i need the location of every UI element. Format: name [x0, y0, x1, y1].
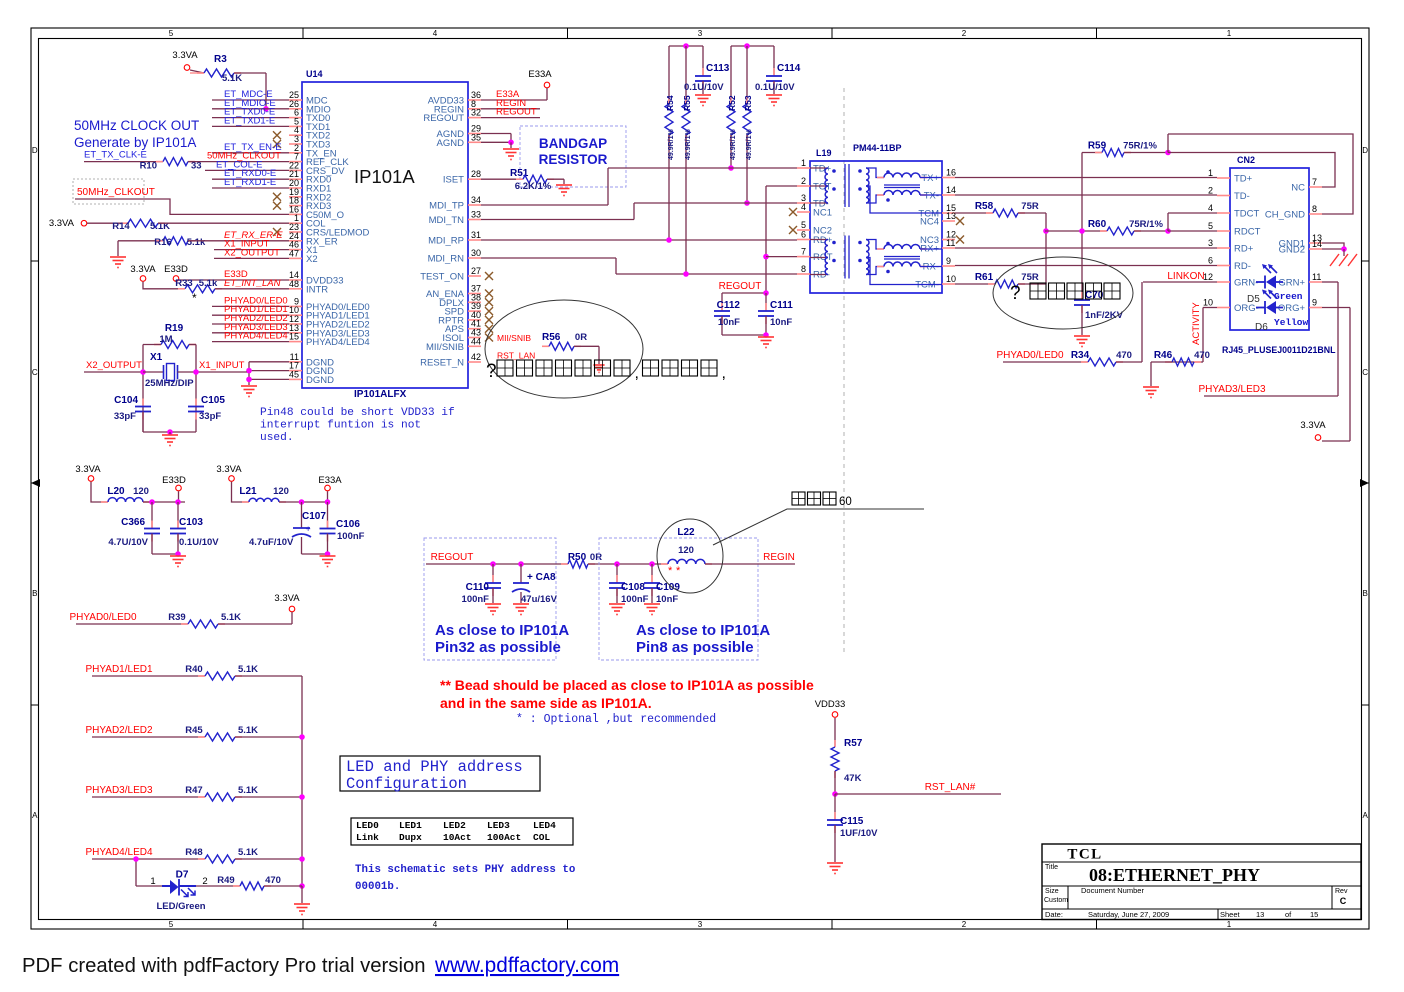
svg-text:RDCT: RDCT: [1234, 227, 1261, 238]
svg-text:4: 4: [433, 29, 438, 38]
svg-text:** Bead should be placed as cl: ** Bead should be placed as close to IP1…: [440, 677, 814, 693]
svg-text:R49: R49: [217, 875, 234, 886]
svg-text:Title: Title: [1045, 864, 1058, 871]
svg-text:TX-: TX-: [924, 191, 939, 202]
svg-text:used.: used.: [260, 432, 294, 444]
svg-text:3.3VA: 3.3VA: [75, 464, 101, 475]
svg-text:9: 9: [946, 256, 951, 266]
svg-text:08:ETHERNET_PHY: 08:ETHERNET_PHY: [1089, 865, 1260, 885]
svg-text:Pin32 as possible: Pin32 as possible: [435, 639, 561, 656]
svg-text:120: 120: [273, 486, 289, 497]
svg-text:100Act: 100Act: [487, 832, 521, 843]
svg-text:VDD33: VDD33: [815, 699, 846, 710]
svg-text:LED4: LED4: [533, 820, 556, 831]
svg-text:TD-: TD-: [1234, 191, 1250, 202]
svg-text:13: 13: [946, 211, 956, 221]
svg-text:ORG+: ORG+: [1278, 303, 1306, 314]
svg-text:C114: C114: [777, 63, 801, 74]
svg-text:REGOUT: REGOUT: [496, 107, 537, 118]
svg-text:R16: R16: [154, 237, 171, 248]
svg-text:C112: C112: [717, 300, 741, 311]
svg-text:GRN-: GRN-: [1234, 278, 1258, 289]
svg-text:R56: R56: [542, 332, 561, 343]
svg-text:E33A: E33A: [318, 475, 342, 486]
svg-text:?: ?: [486, 361, 497, 382]
svg-text:www.pdffactory.com: www.pdffactory.com: [434, 954, 619, 977]
svg-text:*: *: [192, 291, 197, 305]
svg-text:R47: R47: [185, 785, 202, 796]
svg-text:A: A: [32, 811, 38, 820]
svg-text:10nF: 10nF: [656, 594, 678, 605]
svg-text:RESET_N: RESET_N: [420, 358, 464, 369]
svg-text:* : Optional ,but recommended: * : Optional ,but recommended: [516, 713, 716, 726]
svg-text:,: ,: [722, 365, 726, 382]
svg-text:32: 32: [471, 108, 481, 118]
svg-text:PHYAD4/LED4: PHYAD4/LED4: [85, 847, 153, 858]
svg-text:Pin8 as possible: Pin8 as possible: [636, 639, 754, 656]
svg-text:8: 8: [801, 264, 806, 274]
svg-text:U14: U14: [306, 69, 323, 79]
svg-text:5.1K: 5.1K: [238, 725, 258, 736]
svg-text:and in the same side as IP101A: and in the same side as IP101A.: [440, 695, 652, 711]
svg-text:Saturday, June 27, 2009: Saturday, June 27, 2009: [1088, 910, 1169, 919]
svg-text:L21: L21: [239, 486, 257, 497]
svg-text:2: 2: [1208, 186, 1213, 196]
svg-text:3: 3: [1208, 238, 1213, 248]
svg-text:COL: COL: [533, 832, 550, 843]
svg-text:120: 120: [678, 545, 694, 556]
svg-text:E33A: E33A: [528, 69, 552, 80]
svg-text:TDCT: TDCT: [1234, 209, 1260, 220]
svg-text:LED3: LED3: [487, 820, 510, 831]
svg-text:GRN+: GRN+: [1278, 278, 1305, 289]
svg-text:47u/16V: 47u/16V: [521, 594, 558, 605]
svg-text:10Act: 10Act: [443, 832, 472, 843]
svg-text:5.1K: 5.1K: [238, 785, 258, 796]
svg-text:ET_TX_CLK-E: ET_TX_CLK-E: [84, 150, 147, 161]
svg-text:C103: C103: [179, 517, 203, 528]
svg-text:75R/1%: 75R/1%: [1123, 141, 1157, 152]
svg-text:470: 470: [1194, 350, 1210, 361]
svg-text:As close to IP101A: As close to IP101A: [435, 622, 569, 639]
svg-text:MDI_RN: MDI_RN: [428, 254, 465, 265]
svg-text:PHYAD0/LED0: PHYAD0/LED0: [996, 350, 1064, 361]
svg-text:470: 470: [1116, 350, 1132, 361]
svg-text:R55: R55: [682, 95, 692, 111]
svg-text:Date:: Date:: [1045, 910, 1063, 919]
svg-text:LED0: LED0: [356, 820, 379, 831]
svg-text:D: D: [32, 146, 38, 155]
svg-text:RD+: RD+: [1234, 244, 1254, 255]
svg-text:3.3VA: 3.3VA: [172, 50, 198, 61]
svg-text:R34: R34: [1071, 350, 1090, 361]
svg-text:4.7uF/10V: 4.7uF/10V: [249, 537, 294, 548]
svg-text:1: 1: [150, 876, 155, 887]
svg-text:C366: C366: [121, 517, 145, 528]
svg-text:ET_INT_LAN: ET_INT_LAN: [224, 278, 281, 289]
svg-text:3.3VA: 3.3VA: [49, 218, 75, 229]
svg-text:+ CA8: + CA8: [527, 572, 556, 583]
svg-text:5: 5: [1208, 221, 1213, 231]
svg-text:MII/SNIB: MII/SNIB: [426, 342, 464, 353]
svg-text:5: 5: [169, 920, 174, 929]
svg-text:28: 28: [471, 169, 481, 179]
svg-text:TEST_ON: TEST_ON: [420, 272, 464, 283]
svg-text:14: 14: [1312, 239, 1322, 249]
svg-text:50MHz_CLKOUT: 50MHz_CLKOUT: [77, 187, 155, 198]
svg-text:5.1K: 5.1K: [221, 612, 241, 623]
svg-text:30: 30: [471, 248, 481, 258]
svg-text:X1: X1: [150, 352, 163, 363]
svg-text:33pF: 33pF: [199, 411, 221, 422]
svg-text:0R: 0R: [575, 332, 587, 343]
svg-text:RD-: RD-: [1234, 261, 1251, 272]
svg-text:0.1U/10V: 0.1U/10V: [684, 82, 724, 93]
svg-text:R40: R40: [185, 664, 202, 675]
svg-text:49.9R/1%: 49.9R/1%: [685, 128, 692, 160]
svg-text:Size: Size: [1045, 888, 1059, 895]
svg-text:R52: R52: [727, 95, 737, 111]
svg-text:Document Number: Document Number: [1081, 886, 1144, 895]
svg-text:AGND: AGND: [437, 138, 465, 149]
svg-text:Link: Link: [356, 832, 379, 843]
svg-text:6.2K/1%: 6.2K/1%: [515, 181, 552, 192]
svg-text:5: 5: [169, 29, 174, 38]
svg-text:PHYAD3/LED3: PHYAD3/LED3: [85, 785, 153, 796]
svg-text:4: 4: [801, 202, 806, 212]
svg-text:REGOUT: REGOUT: [431, 552, 474, 563]
svg-text:R48: R48: [185, 847, 202, 858]
svg-text:LED and PHY address: LED and PHY address: [346, 758, 523, 776]
svg-text:X2_OUTPUT: X2_OUTPUT: [86, 360, 142, 371]
svg-text:2: 2: [962, 920, 967, 929]
svg-text:5.1k: 5.1k: [199, 278, 218, 289]
svg-text:6: 6: [801, 230, 806, 240]
svg-text:X2_OUTPUT: X2_OUTPUT: [224, 247, 280, 258]
svg-text:R39: R39: [168, 612, 185, 623]
svg-text:*: *: [676, 565, 681, 577]
svg-text:0.1U/10V: 0.1U/10V: [179, 537, 219, 548]
svg-text:3: 3: [698, 29, 703, 38]
svg-text:C113: C113: [706, 63, 730, 74]
svg-text:C106: C106: [336, 519, 360, 530]
svg-text:PHYAD2/LED2: PHYAD2/LED2: [85, 725, 153, 736]
svg-text:31: 31: [471, 230, 481, 240]
svg-text:1: 1: [1227, 920, 1232, 929]
svg-text:14: 14: [946, 185, 956, 195]
svg-text:This schematic sets PHY addres: This schematic sets PHY address to: [355, 864, 575, 876]
svg-text:D7: D7: [176, 870, 189, 881]
svg-text:100nF: 100nF: [462, 594, 490, 605]
svg-text:R57: R57: [844, 738, 863, 749]
svg-text:1UF/10V: 1UF/10V: [840, 828, 878, 839]
svg-text:L20: L20: [107, 486, 125, 497]
svg-text:44: 44: [471, 336, 481, 346]
svg-text:49.9R/1%: 49.9R/1%: [668, 128, 675, 160]
svg-text:TD+: TD+: [1234, 174, 1253, 185]
svg-text:11: 11: [946, 238, 955, 248]
svg-text:D5: D5: [1247, 294, 1260, 305]
svg-text:E33D: E33D: [164, 264, 188, 275]
svg-text:D: D: [1362, 146, 1368, 155]
svg-text:Custom: Custom: [1044, 897, 1068, 904]
svg-text:100nF: 100nF: [337, 531, 365, 542]
svg-text:C111: C111: [770, 300, 793, 311]
svg-text:NC4: NC4: [920, 217, 939, 228]
svg-text:TD+: TD+: [813, 164, 832, 175]
svg-text:CN2: CN2: [1237, 155, 1255, 165]
svg-text:49.9R/1%: 49.9R/1%: [746, 128, 753, 160]
svg-text:MII/SNIB: MII/SNIB: [497, 333, 531, 343]
svg-text:34: 34: [471, 195, 481, 205]
svg-text:0R: 0R: [590, 552, 602, 563]
svg-text:interrupt funtion is not: interrupt funtion is not: [260, 420, 421, 432]
svg-text:3.3VA: 3.3VA: [130, 264, 156, 275]
svg-text:R3: R3: [214, 54, 227, 65]
svg-text:48: 48: [289, 279, 299, 289]
svg-text:R53: R53: [743, 95, 753, 111]
svg-text:*: *: [668, 565, 673, 577]
svg-text:ET_TXD1-E: ET_TXD1-E: [224, 115, 275, 126]
svg-text:9: 9: [1312, 298, 1317, 308]
svg-text:GND2: GND2: [1279, 245, 1305, 256]
svg-text:60: 60: [839, 496, 852, 508]
svg-text:1M: 1M: [159, 334, 172, 345]
svg-text:49.9R/1%: 49.9R/1%: [730, 128, 737, 160]
svg-text:75R/1%: 75R/1%: [1129, 219, 1163, 230]
svg-text:5.1K: 5.1K: [238, 847, 258, 858]
svg-text:DGND: DGND: [306, 375, 334, 386]
svg-text:MDI_RP: MDI_RP: [428, 236, 464, 247]
svg-text:C115: C115: [840, 816, 864, 827]
svg-text:BANDGAP: BANDGAP: [539, 136, 607, 151]
svg-text:0.1U/10V: 0.1U/10V: [755, 82, 795, 93]
svg-text:16: 16: [946, 168, 956, 178]
svg-text:5.1K: 5.1K: [222, 73, 242, 84]
svg-text:C110: C110: [466, 582, 490, 593]
svg-text:REGOUT: REGOUT: [719, 281, 762, 292]
svg-text:10: 10: [1203, 298, 1213, 308]
svg-text:PHYAD1/LED1: PHYAD1/LED1: [85, 664, 153, 675]
svg-text:42: 42: [471, 352, 481, 362]
svg-text:10nF: 10nF: [718, 317, 740, 328]
svg-text:7: 7: [801, 247, 806, 257]
svg-text:4: 4: [433, 920, 438, 929]
svg-text:of: of: [1285, 910, 1292, 919]
svg-text:E33D: E33D: [162, 475, 186, 486]
svg-text:R46: R46: [1154, 350, 1173, 361]
svg-text:00001b.: 00001b.: [355, 881, 400, 893]
svg-text:7: 7: [1312, 177, 1317, 187]
svg-text:8: 8: [1312, 204, 1317, 214]
svg-text:LINKON: LINKON: [1167, 271, 1204, 282]
svg-text:R19: R19: [165, 323, 184, 334]
svg-text:?: ?: [1010, 283, 1021, 304]
svg-text:C105: C105: [201, 395, 225, 406]
svg-text:ISET: ISET: [443, 175, 464, 186]
svg-text:D6: D6: [1255, 322, 1268, 333]
svg-text:6: 6: [1208, 256, 1213, 266]
svg-text:C107: C107: [302, 511, 326, 522]
svg-text:75R: 75R: [1021, 201, 1039, 212]
svg-text:50MHz CLOCK OUT: 50MHz CLOCK OUT: [74, 118, 199, 133]
svg-text:15: 15: [289, 332, 299, 342]
svg-text:IP101ALFX: IP101ALFX: [354, 389, 407, 400]
svg-text:Sheet: Sheet: [1220, 910, 1241, 919]
svg-text:4.7U/10V: 4.7U/10V: [108, 537, 148, 548]
svg-text:PDF created with pdfFactory Pr: PDF created with pdfFactory Pro trial ve…: [22, 955, 426, 977]
svg-text:L19: L19: [816, 148, 832, 158]
svg-text:35: 35: [471, 132, 481, 142]
svg-text:3.3VA: 3.3VA: [274, 593, 300, 604]
svg-text:REGOUT: REGOUT: [423, 113, 464, 124]
svg-text:TCL: TCL: [1067, 847, 1102, 863]
svg-text:1: 1: [1208, 168, 1213, 178]
svg-text:45: 45: [289, 369, 299, 379]
svg-text:R14: R14: [112, 221, 130, 232]
svg-text:R33: R33: [175, 278, 192, 289]
svg-text:4: 4: [1208, 203, 1213, 213]
svg-text:Green: Green: [1274, 291, 1303, 302]
svg-text:25MHz/DIP: 25MHz/DIP: [145, 378, 194, 389]
svg-text:R61: R61: [975, 272, 994, 283]
svg-text:RST_LAN: RST_LAN: [497, 351, 535, 361]
svg-text:L22: L22: [677, 527, 695, 538]
svg-text:RST_LAN#: RST_LAN#: [925, 782, 976, 793]
svg-text:NC: NC: [1291, 183, 1305, 194]
svg-text:75R: 75R: [1021, 272, 1039, 283]
svg-text:10: 10: [946, 274, 956, 284]
svg-text:CH_GND: CH_GND: [1265, 210, 1305, 221]
svg-text:33: 33: [471, 210, 481, 220]
svg-text:TCT: TCT: [813, 182, 832, 193]
svg-text:PHYAD4/LED4: PHYAD4/LED4: [224, 331, 288, 342]
svg-text:3: 3: [698, 920, 703, 929]
svg-text:47: 47: [289, 248, 299, 258]
svg-text:13: 13: [1256, 910, 1264, 919]
svg-text:B: B: [1363, 589, 1368, 598]
svg-text:RJ45_PLUSEJ0011D21BNL: RJ45_PLUSEJ0011D21BNL: [1222, 345, 1336, 355]
svg-text:2: 2: [801, 176, 806, 186]
svg-text:47K: 47K: [844, 773, 862, 784]
svg-text:+: +: [306, 524, 311, 534]
svg-text:R10: R10: [140, 161, 157, 172]
svg-text:1: 1: [1227, 29, 1232, 38]
svg-text:3.3VA: 3.3VA: [216, 464, 242, 475]
svg-text:11: 11: [1312, 272, 1321, 282]
svg-text:C: C: [1340, 896, 1347, 906]
svg-text:1: 1: [801, 158, 806, 168]
svg-text:R54: R54: [665, 95, 675, 111]
svg-text:LED/Green: LED/Green: [156, 901, 205, 912]
svg-text:R58: R58: [975, 201, 994, 212]
svg-text:33pF: 33pF: [114, 411, 136, 422]
svg-text:X2: X2: [306, 254, 318, 265]
svg-text:C104: C104: [114, 395, 138, 406]
svg-text:5.1K: 5.1K: [238, 664, 258, 675]
svg-text:10nF: 10nF: [770, 317, 792, 328]
svg-text:3.3VA: 3.3VA: [1300, 420, 1326, 431]
svg-text:A: A: [1363, 811, 1369, 820]
svg-text:R45: R45: [185, 725, 203, 736]
svg-text:MDI_TN: MDI_TN: [429, 215, 465, 226]
svg-text:X1_INPUT: X1_INPUT: [199, 360, 245, 371]
svg-text:Dupx: Dupx: [399, 832, 422, 843]
svg-text:INTR: INTR: [306, 284, 328, 295]
svg-text:IP101A: IP101A: [354, 166, 415, 187]
svg-text:PM44-11BP: PM44-11BP: [853, 143, 902, 153]
svg-text:Yellow: Yellow: [1274, 317, 1309, 328]
svg-text:27: 27: [471, 266, 481, 276]
svg-text:REGIN: REGIN: [763, 552, 795, 563]
svg-text:RD+: RD+: [813, 235, 833, 246]
svg-text:Pin48 could be short VDD33 if: Pin48 could be short VDD33 if: [260, 407, 455, 419]
svg-text:5.1k: 5.1k: [187, 237, 206, 248]
svg-text:C: C: [1362, 368, 1368, 377]
svg-text:15: 15: [1310, 910, 1318, 919]
svg-text:LED2: LED2: [443, 820, 466, 831]
svg-text:TX+: TX+: [921, 173, 939, 184]
svg-text:120: 120: [133, 486, 149, 497]
svg-text:ACTIVITY: ACTIVITY: [1191, 302, 1202, 345]
svg-text:470: 470: [265, 875, 281, 886]
svg-text:B: B: [32, 589, 37, 598]
svg-text:Rev: Rev: [1335, 888, 1348, 895]
svg-text:PHYAD3/LED3: PHYAD3/LED3: [1198, 384, 1266, 395]
svg-text:RESISTOR: RESISTOR: [539, 152, 608, 167]
svg-text:Generate by IP101A: Generate by IP101A: [74, 135, 196, 150]
svg-text:Configuration: Configuration: [346, 775, 467, 793]
svg-text:,: ,: [635, 365, 639, 382]
svg-text:MDI_TP: MDI_TP: [429, 201, 464, 212]
svg-text:C: C: [32, 368, 38, 377]
svg-text:2: 2: [962, 29, 967, 38]
svg-text:5: 5: [801, 220, 806, 230]
svg-text:C108: C108: [621, 582, 645, 593]
svg-text:LED1: LED1: [399, 820, 422, 831]
svg-text:R60: R60: [1088, 219, 1107, 230]
svg-text:PHYAD0/LED0: PHYAD0/LED0: [69, 612, 137, 623]
svg-text:ET_RXD1-E: ET_RXD1-E: [224, 177, 276, 188]
svg-text:NC1: NC1: [813, 208, 832, 219]
svg-text:As close to IP101A: As close to IP101A: [636, 622, 770, 639]
svg-text:PHYAD4/LED4: PHYAD4/LED4: [306, 337, 370, 348]
